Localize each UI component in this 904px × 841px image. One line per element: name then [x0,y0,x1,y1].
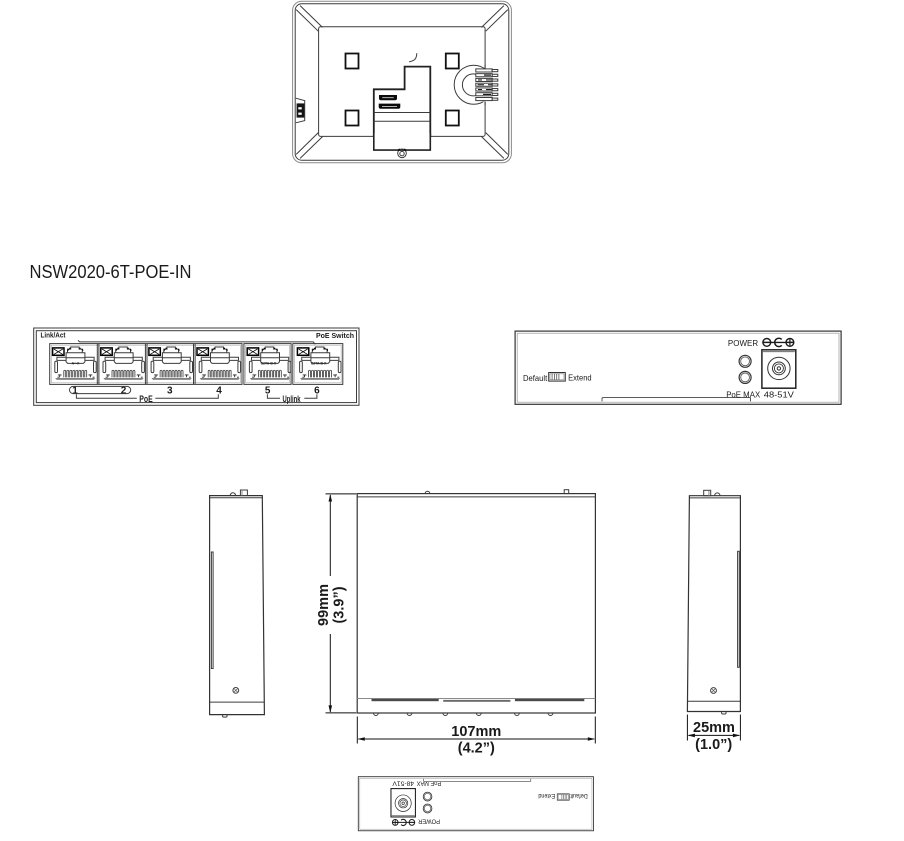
svg-text:Uplink: Uplink [283,394,302,404]
svg-text:C2TA-B-X: C2TA-B-X [311,362,327,366]
svg-text:PoE: PoE [139,394,153,404]
svg-text:25mm: 25mm [693,720,735,736]
svg-text:1: 1 [72,385,78,396]
svg-text:(1.0”): (1.0”) [695,737,732,753]
svg-text:Link/Act: Link/Act [41,331,66,340]
svg-text:3: 3 [167,385,173,396]
svg-text:(4.2”): (4.2”) [458,741,495,757]
svg-text:(3.9”): (3.9”) [332,586,348,623]
svg-text:2: 2 [121,385,127,396]
svg-text:107mm: 107mm [451,724,501,740]
svg-text:4: 4 [216,385,222,396]
svg-text:99mm: 99mm [316,584,332,626]
svg-text:PoE Switch: PoE Switch [316,331,354,340]
svg-text:C2TA-B-X: C2TA-B-X [261,362,277,366]
svg-text:A+-X: A+-X [72,361,81,365]
svg-text:NSW2020-6T-POE-IN: NSW2020-6T-POE-IN [30,262,192,282]
